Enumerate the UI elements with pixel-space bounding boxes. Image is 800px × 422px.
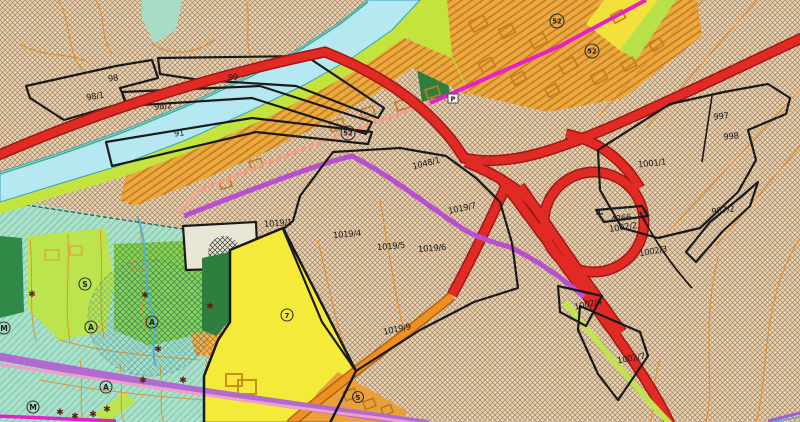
svg-text:M: M [0,324,8,333]
svg-text:52: 52 [552,18,562,26]
parking-marker-label: P [451,96,456,104]
asterisk-marker: ✱ [179,376,187,386]
asterisk-marker: ✱ [56,408,64,418]
parcel-label-1019-1: 1019/1 [264,218,293,230]
parcel-label-99: 99 [228,72,239,83]
svg-text:52: 52 [587,48,597,56]
svg-text:M: M [29,403,37,412]
forest-parcel [202,252,230,336]
parcel-label-98: 98 [107,73,119,84]
cadastral-zoning-map[interactable]: P 98 98/1 98/2 91 99 1048/1 1019/1 1019/… [0,0,800,422]
svg-text:A: A [88,323,94,332]
asterisk-marker: ✱ [139,376,147,386]
svg-text:52: 52 [343,130,353,138]
asterisk-marker: ✱ [206,302,214,312]
parcel-label-98-2: 98/2 [154,101,173,113]
svg-text:7: 7 [285,312,290,320]
asterisk-marker: ✱ [28,290,36,300]
asterisk-marker: ✱ [141,291,149,301]
point-marker: P [448,94,458,104]
asterisk-marker: ✱ [89,410,97,420]
svg-text:5: 5 [356,394,361,402]
asterisk-marker: ✱ [103,405,111,415]
asterisk-marker: ✱ [154,345,162,355]
asterisk-marker: ✱ [71,412,79,422]
parcel-label-998: 998 [723,131,739,143]
parcel-label-997: 997 [713,111,729,123]
svg-text:A: A [149,318,155,327]
parcel-label-91: 91 [173,128,185,139]
map-viewport[interactable]: P 98 98/1 98/2 91 99 1048/1 1019/1 1019/… [0,0,800,422]
svg-text:A: A [103,383,109,392]
svg-text:S: S [82,280,87,289]
